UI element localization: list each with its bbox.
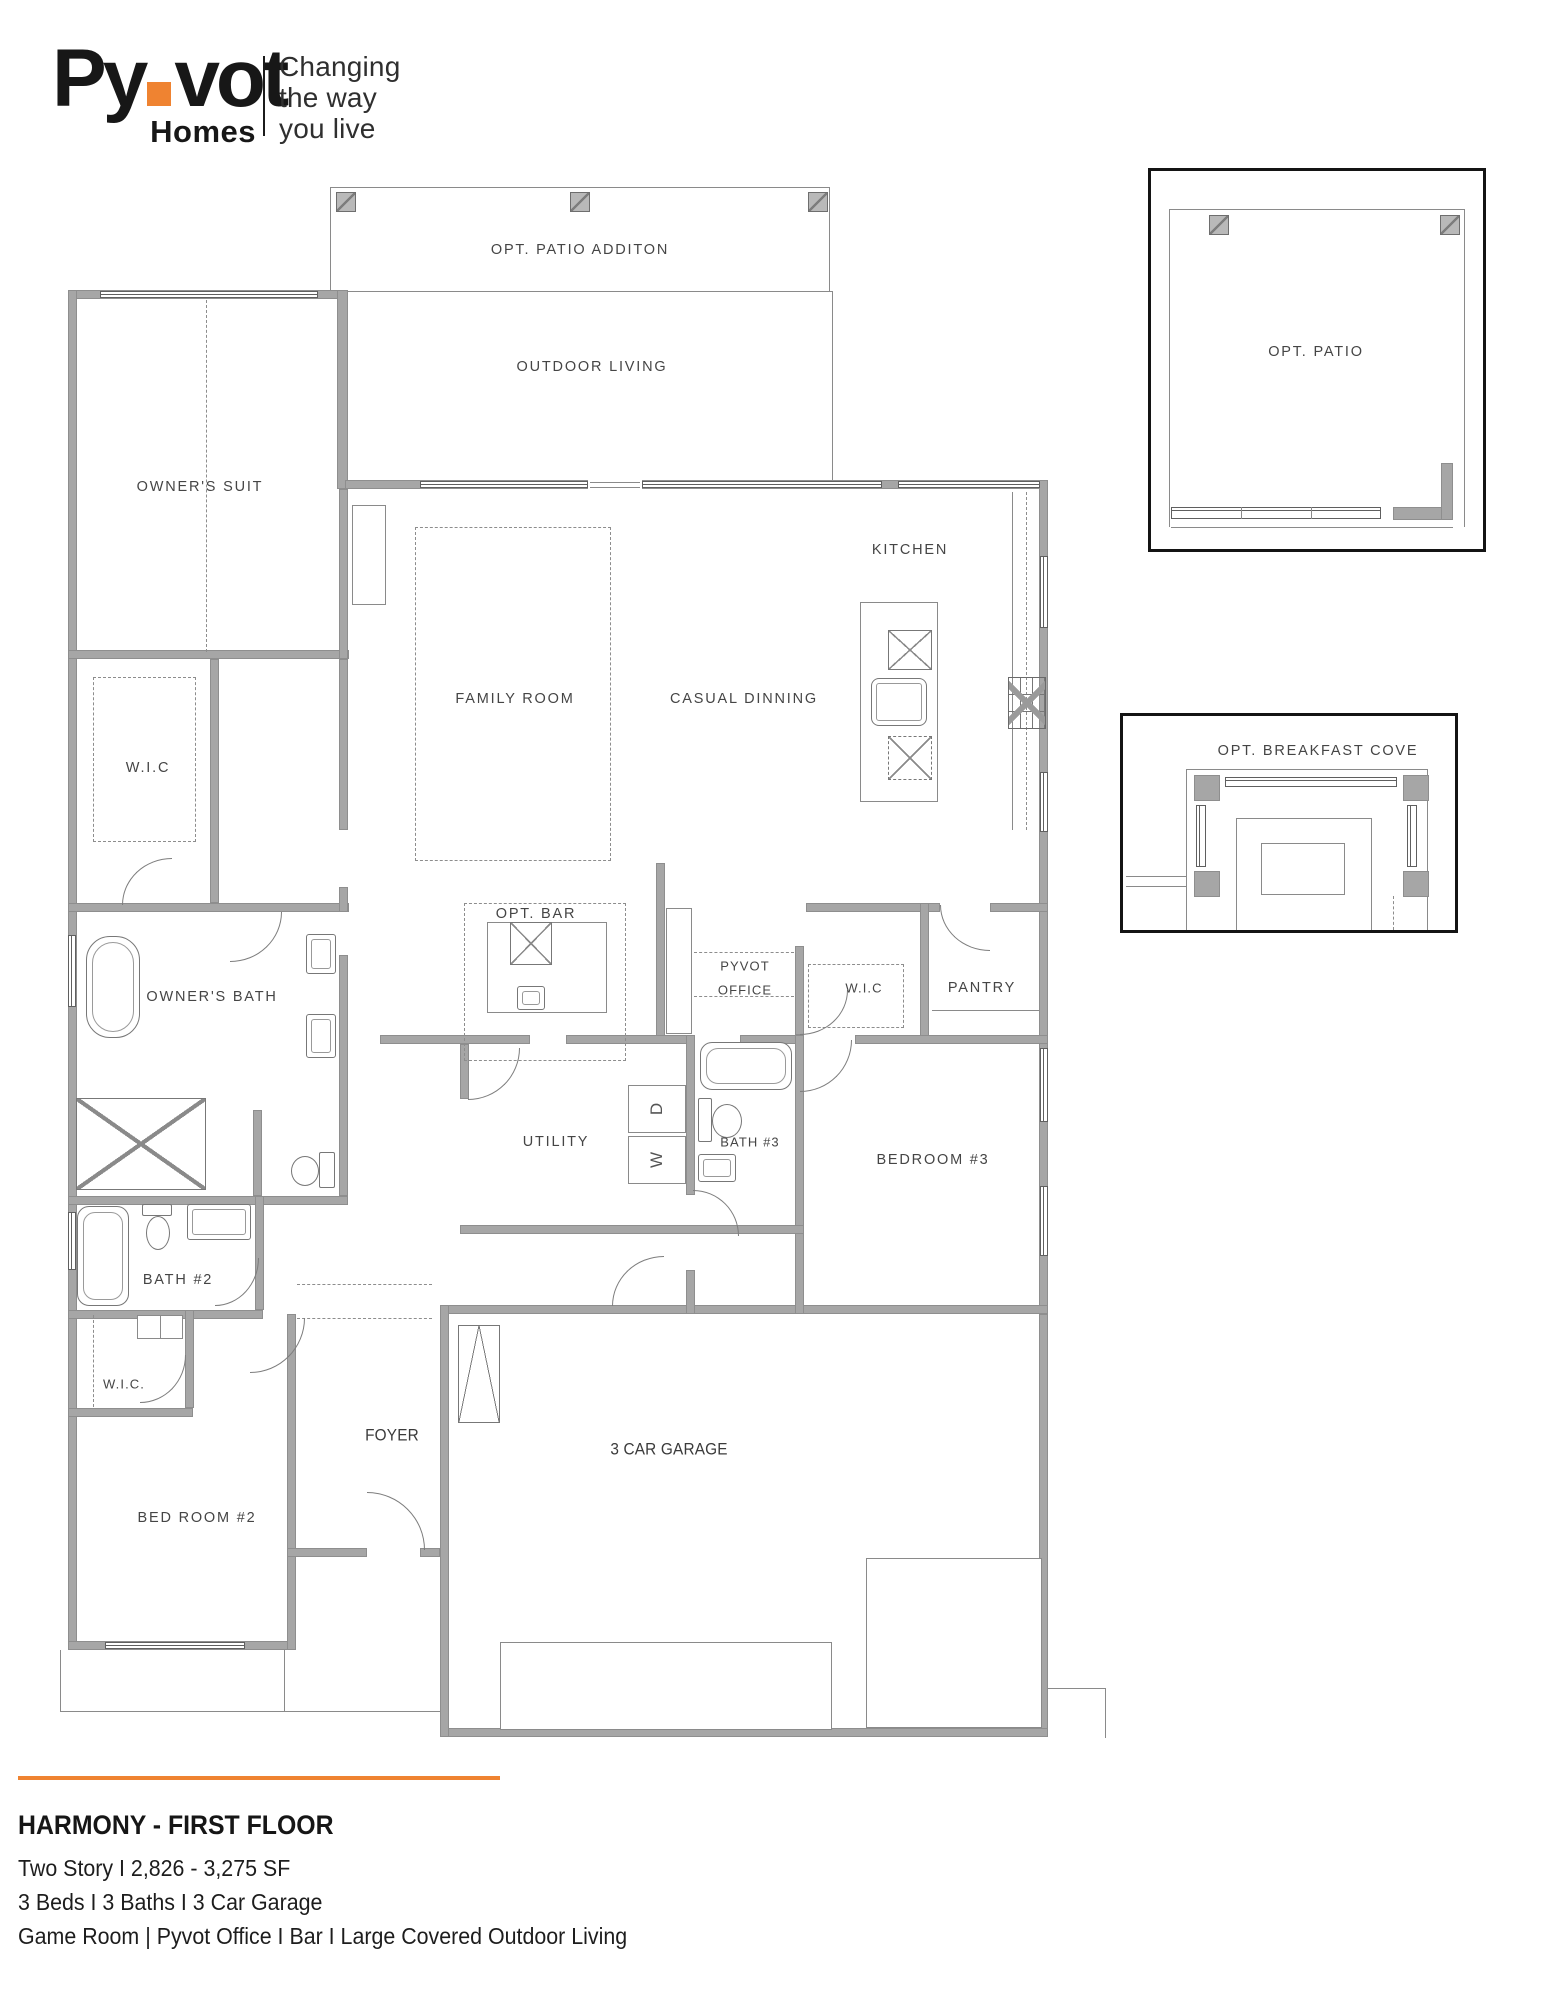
line bbox=[1371, 818, 1372, 930]
door-arc bbox=[230, 912, 282, 962]
logo-wordmark: Pyvot bbox=[52, 40, 256, 118]
door-arc bbox=[140, 1355, 186, 1403]
plan-summary: HARMONY - FIRST FLOOR Two Story I 2,826 … bbox=[18, 1810, 673, 1953]
room-label-family-room: FAMILY ROOM bbox=[455, 691, 574, 707]
wall bbox=[1194, 775, 1220, 801]
fireplace-builtin bbox=[352, 505, 386, 605]
line bbox=[1171, 527, 1453, 528]
wall bbox=[185, 1310, 194, 1408]
room-label-bedroom3: BEDROOM #3 bbox=[876, 1152, 989, 1168]
dashed-line bbox=[297, 1284, 432, 1285]
shower bbox=[76, 1098, 206, 1190]
dashed-line bbox=[206, 300, 207, 652]
wall bbox=[255, 1196, 264, 1310]
toilet-bowl bbox=[291, 1156, 319, 1186]
washer-letter: W bbox=[647, 1152, 667, 1168]
room-label-opt-patio-addition: OPT. PATIO ADDITON bbox=[491, 242, 669, 258]
window bbox=[420, 481, 588, 488]
window bbox=[1171, 507, 1381, 519]
door-arc bbox=[367, 1492, 425, 1550]
wall bbox=[686, 1270, 695, 1314]
line bbox=[590, 482, 640, 483]
room-label-breakfast-cove: OPT. BREAKFAST COVE bbox=[1218, 743, 1419, 759]
window bbox=[642, 481, 882, 488]
line bbox=[1464, 209, 1465, 527]
line bbox=[832, 291, 833, 480]
wall bbox=[210, 659, 219, 903]
toilet-tank bbox=[142, 1204, 172, 1216]
spec-stories-sf: Two Story I 2,826 - 3,275 SF bbox=[18, 1851, 627, 1885]
wall bbox=[460, 1225, 804, 1234]
wall bbox=[440, 1305, 449, 1737]
window bbox=[1196, 805, 1206, 867]
pyvot-homes-logo: Pyvot Homes bbox=[52, 40, 256, 150]
breakfast-table bbox=[1261, 843, 1345, 895]
line bbox=[1236, 818, 1372, 819]
dashed-line bbox=[93, 1315, 94, 1407]
logo-text-vot: vot bbox=[174, 33, 285, 124]
wall bbox=[339, 887, 348, 912]
patio-post-icon bbox=[1440, 215, 1460, 235]
tagline-line1: Changing bbox=[279, 52, 400, 83]
room-label-bedroom2: BED ROOM #2 bbox=[138, 1510, 257, 1526]
wall bbox=[339, 489, 348, 659]
door-opening bbox=[588, 479, 642, 490]
room-label-wic-owners: W.I.C bbox=[126, 760, 170, 776]
line bbox=[1186, 769, 1187, 930]
wall bbox=[287, 1314, 296, 1650]
counter-line bbox=[1012, 492, 1013, 830]
vanity-sink bbox=[187, 1204, 251, 1240]
toilet-tank bbox=[319, 1152, 335, 1188]
tagline-line2: the way bbox=[279, 83, 400, 114]
room-label-foyer: FOYER bbox=[365, 1427, 419, 1446]
room-label-pyvot-office-line2: OFFICE bbox=[718, 983, 772, 998]
line bbox=[1105, 1688, 1106, 1738]
wall bbox=[1403, 775, 1429, 801]
line bbox=[1126, 886, 1186, 887]
line bbox=[1241, 507, 1242, 519]
logo-tagline: Changing the way you live bbox=[279, 52, 400, 144]
line bbox=[829, 187, 830, 291]
bar-cabinet bbox=[510, 922, 552, 965]
vanity-sink bbox=[306, 1014, 336, 1058]
wall bbox=[337, 290, 348, 489]
wall bbox=[686, 1035, 695, 1195]
door-arc bbox=[215, 1258, 259, 1306]
room-label-utility: UTILITY bbox=[523, 1134, 590, 1150]
wall bbox=[68, 650, 349, 659]
inset-breakfast-cove: OPT. BREAKFAST COVE bbox=[1120, 713, 1458, 933]
window bbox=[68, 1212, 76, 1270]
toilet-bowl bbox=[146, 1216, 170, 1250]
bathtub bbox=[77, 1206, 129, 1306]
accent-divider bbox=[18, 1776, 500, 1780]
door-arc bbox=[800, 990, 848, 1035]
window bbox=[1407, 805, 1417, 867]
window bbox=[100, 291, 318, 298]
wall bbox=[990, 903, 1048, 912]
page: Pyvot Homes Changing the way you live bbox=[0, 0, 1545, 2000]
counter-dashed bbox=[1026, 492, 1027, 830]
window bbox=[1040, 1048, 1048, 1122]
line bbox=[160, 1315, 161, 1339]
patio-post-icon bbox=[808, 192, 828, 212]
room-label-bath3: BATH #3 bbox=[720, 1135, 779, 1150]
window bbox=[1040, 772, 1048, 832]
patio-post-icon bbox=[336, 192, 356, 212]
window bbox=[1040, 556, 1048, 628]
garage-door bbox=[500, 1642, 832, 1730]
toilet-bowl bbox=[712, 1104, 742, 1138]
wall bbox=[855, 1035, 1048, 1044]
line bbox=[1169, 209, 1465, 210]
logo-text-py: Py bbox=[52, 33, 144, 124]
vanity-sink bbox=[698, 1154, 736, 1182]
wall bbox=[440, 1305, 1048, 1314]
garage-door bbox=[866, 1558, 1042, 1728]
bar-sink bbox=[517, 986, 545, 1010]
room-label-pantry: PANTRY bbox=[948, 980, 1016, 996]
dashed-line bbox=[694, 952, 794, 953]
room-label-kitchen: KITCHEN bbox=[872, 542, 948, 558]
door-arc bbox=[250, 1318, 305, 1373]
window bbox=[1225, 777, 1397, 787]
room-label-bath2: BATH #2 bbox=[143, 1272, 213, 1288]
plan-title: HARMONY - FIRST FLOOR bbox=[18, 1810, 621, 1841]
stairs bbox=[458, 1325, 500, 1423]
room-label-wic-middle: W.I.C bbox=[845, 981, 882, 996]
room-label-owners-suite: OWNER'S SUIT bbox=[137, 479, 264, 495]
wall bbox=[1441, 463, 1453, 520]
window bbox=[68, 935, 76, 1007]
room-label-opt-patio: OPT. PATIO bbox=[1268, 344, 1364, 360]
line bbox=[1236, 818, 1237, 930]
tagline-line3: you live bbox=[279, 114, 400, 145]
door-arc bbox=[468, 1048, 520, 1100]
line bbox=[1186, 769, 1428, 770]
room-label-opt-bar: OPT. BAR bbox=[496, 906, 576, 922]
line bbox=[60, 1711, 441, 1712]
line bbox=[1311, 507, 1312, 519]
patio-post-icon bbox=[570, 192, 590, 212]
line bbox=[1048, 1688, 1106, 1689]
door-arc bbox=[693, 1190, 739, 1236]
wall bbox=[68, 903, 349, 912]
toilet-tank bbox=[698, 1098, 712, 1142]
door-arc bbox=[612, 1256, 664, 1306]
line bbox=[330, 187, 331, 291]
wall bbox=[656, 863, 665, 1044]
wall bbox=[339, 659, 348, 830]
wall bbox=[1403, 871, 1429, 897]
logo-divider bbox=[263, 56, 265, 136]
wall bbox=[920, 903, 929, 1044]
dishwasher bbox=[888, 630, 932, 670]
dashed-line bbox=[1393, 896, 1394, 930]
line bbox=[590, 487, 640, 488]
room-label-casual-dining: CASUAL DINNING bbox=[670, 691, 818, 707]
room-label-wic-bed2: W.I.C. bbox=[103, 1377, 145, 1392]
patio-post-icon bbox=[1209, 215, 1229, 235]
wall bbox=[68, 1408, 193, 1417]
wall bbox=[339, 955, 348, 1196]
line bbox=[330, 187, 830, 188]
range-cooktop bbox=[1008, 677, 1046, 729]
kitchen-sink bbox=[871, 678, 927, 726]
room-label-outdoor-living: OUTDOOR LIVING bbox=[517, 359, 668, 375]
counter-line bbox=[932, 1010, 1039, 1011]
bathtub bbox=[86, 936, 140, 1038]
wall bbox=[287, 1548, 367, 1557]
door-arc bbox=[800, 1040, 852, 1092]
window bbox=[898, 481, 1040, 488]
spec-features: Game Room | Pyvot Office I Bar I Large C… bbox=[18, 1919, 627, 1953]
spec-beds-baths: 3 Beds I 3 Baths I 3 Car Garage bbox=[18, 1885, 627, 1919]
vanity-sink bbox=[306, 934, 336, 974]
line bbox=[1169, 209, 1170, 527]
bathtub bbox=[700, 1042, 792, 1090]
optional-appliance bbox=[888, 736, 932, 780]
room-label-garage: 3 CAR GARAGE bbox=[610, 1441, 727, 1460]
door-arc bbox=[122, 858, 172, 905]
dashed-line bbox=[297, 1318, 432, 1319]
line bbox=[284, 1650, 285, 1711]
wall bbox=[253, 1110, 262, 1196]
inset-opt-patio: OPT. PATIO bbox=[1148, 168, 1486, 552]
plan-specs: Two Story I 2,826 - 3,275 SF 3 Beds I 3 … bbox=[18, 1851, 673, 1953]
line bbox=[60, 1650, 61, 1712]
door-arc bbox=[940, 905, 990, 951]
window bbox=[105, 1642, 245, 1649]
line bbox=[345, 291, 832, 292]
logo-orange-square-icon bbox=[147, 82, 171, 106]
room-label-owners-bath: OWNER'S BATH bbox=[146, 989, 277, 1005]
wall bbox=[1194, 871, 1220, 897]
line bbox=[1126, 876, 1186, 877]
room-label-pyvot-office-line1: PYVOT bbox=[720, 959, 770, 974]
dryer-letter: D bbox=[647, 1103, 667, 1115]
office-bookcase bbox=[666, 908, 692, 1034]
window bbox=[1040, 1186, 1048, 1256]
